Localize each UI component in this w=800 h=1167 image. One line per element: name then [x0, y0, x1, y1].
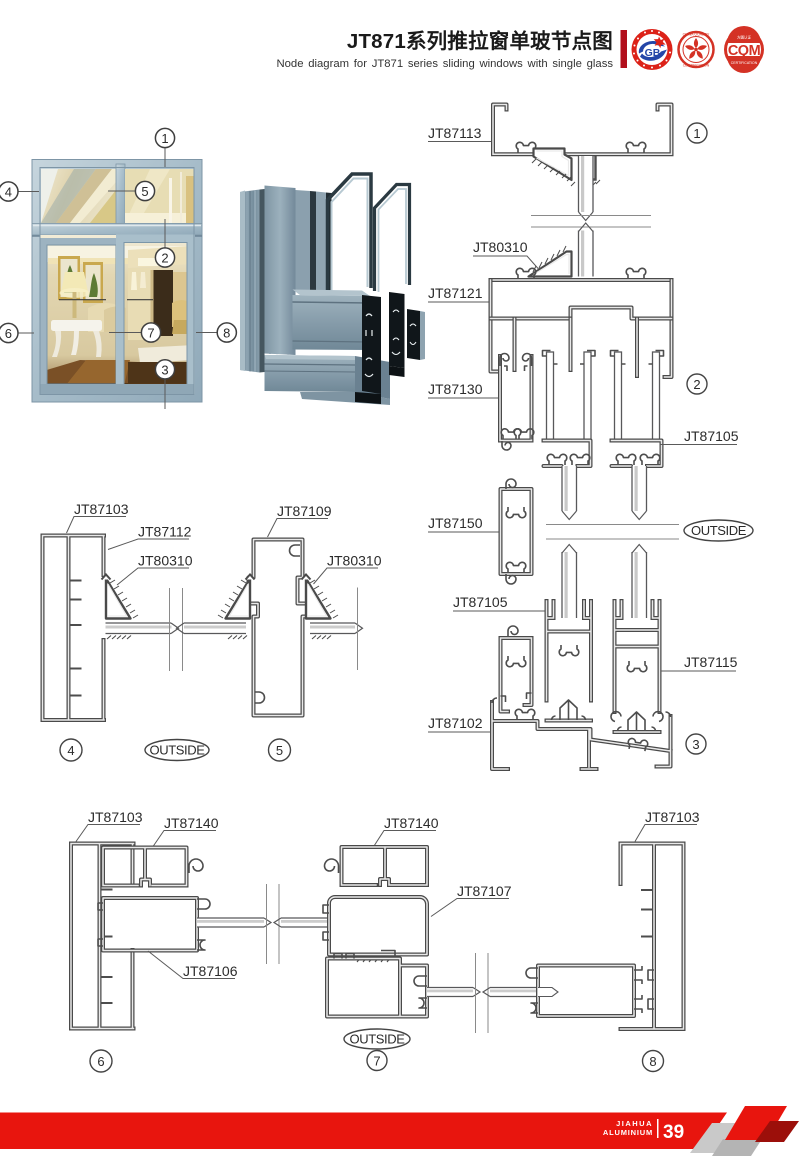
svg-text:JT87130: JT87130: [428, 381, 483, 397]
svg-text:OUTSIDE: OUTSIDE: [150, 743, 206, 758]
svg-text:GB: GB: [645, 47, 661, 59]
svg-text:2: 2: [693, 377, 700, 392]
svg-text:CQM: CQM: [728, 43, 761, 59]
svg-text:JT87102: JT87102: [428, 715, 483, 731]
svg-text:8: 8: [649, 1054, 656, 1069]
svg-text:8: 8: [223, 326, 230, 341]
svg-text:JT87106: JT87106: [183, 963, 238, 979]
svg-text:OUTSIDE: OUTSIDE: [691, 523, 747, 538]
svg-text:Node diagram for JT871 series: Node diagram for JT871 series sliding wi…: [276, 58, 613, 70]
svg-text:JT871系列推拉窗单玻节点图: JT871系列推拉窗单玻节点图: [347, 29, 613, 53]
svg-text:6: 6: [97, 1054, 104, 1069]
svg-text:JT87113: JT87113: [428, 125, 482, 141]
svg-text:ALUMINIUM: ALUMINIUM: [603, 1128, 653, 1137]
svg-text:JT87109: JT87109: [277, 503, 332, 519]
svg-text:JT87105: JT87105: [684, 428, 739, 444]
svg-text:7: 7: [373, 1053, 380, 1068]
svg-text:3: 3: [161, 362, 168, 377]
svg-text:1: 1: [161, 131, 168, 146]
svg-text:JT87140: JT87140: [384, 815, 439, 831]
svg-text:5: 5: [141, 184, 148, 199]
svg-text:JT80310: JT80310: [473, 239, 528, 255]
svg-text:OUTSIDE: OUTSIDE: [350, 1032, 406, 1047]
svg-text:2: 2: [161, 251, 168, 266]
svg-text:CERTIFICATION: CERTIFICATION: [731, 61, 758, 65]
svg-text:CERTIFICATION: CERTIFICATION: [683, 63, 710, 67]
svg-text:JT87140: JT87140: [164, 815, 219, 831]
svg-text:JT80310: JT80310: [138, 553, 193, 569]
svg-text:JT87150: JT87150: [428, 515, 483, 531]
svg-text:JT87112: JT87112: [138, 524, 192, 540]
svg-text:JIAHUA: JIAHUA: [616, 1119, 653, 1128]
svg-text:4: 4: [67, 743, 74, 758]
svg-text:3: 3: [692, 737, 699, 752]
svg-text:方圆认证: 方圆认证: [737, 35, 751, 40]
svg-text:JT87121: JT87121: [428, 285, 483, 301]
svg-text:JT87103: JT87103: [645, 809, 700, 825]
svg-text:JT87115: JT87115: [684, 654, 738, 670]
svg-text:JT87105: JT87105: [453, 594, 508, 610]
svg-text:JT80310: JT80310: [327, 553, 382, 569]
svg-text:5: 5: [276, 743, 283, 758]
svg-text:JT87103: JT87103: [88, 809, 143, 825]
svg-text:CHINA QUALITY: CHINA QUALITY: [683, 32, 710, 36]
svg-text:39: 39: [663, 1122, 684, 1143]
svg-text:6: 6: [5, 326, 12, 341]
svg-text:4: 4: [5, 185, 12, 200]
svg-text:1: 1: [693, 126, 700, 141]
svg-text:7: 7: [147, 326, 154, 341]
svg-text:JT87107: JT87107: [457, 883, 512, 899]
svg-text:JT87103: JT87103: [74, 501, 129, 517]
